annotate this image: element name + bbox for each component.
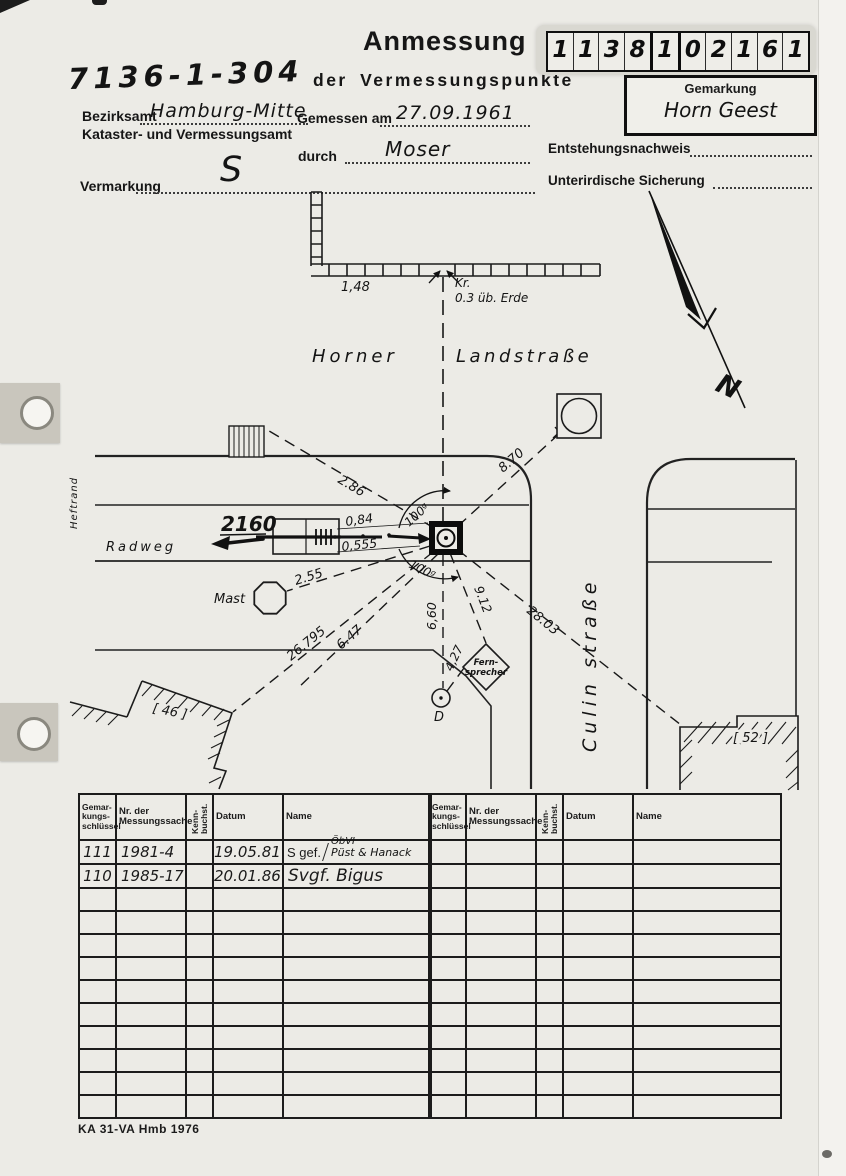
kr-label: Kr.	[455, 276, 471, 290]
wall-distance-label: 1,48	[341, 280, 370, 295]
col-header-gemarkung: Gemar- kungs- schlüssel	[429, 794, 466, 840]
cell-schluessel: 110	[79, 864, 116, 888]
measurement-log-table-left: Gemar- kungs- schlüssel Nr. der Messungs…	[78, 793, 432, 1119]
name-divider	[322, 843, 330, 861]
table-row: 110 1985-17 20.01.86 Svgf. Bigus	[79, 864, 431, 888]
heftrand-label: Heftrand	[69, 477, 80, 529]
scanned-survey-form: 7136-1-304 Anmessung der Vermessungspunk…	[0, 0, 846, 1176]
table-row	[429, 1072, 781, 1095]
radweg-label: Radweg	[106, 540, 176, 555]
table-row	[79, 911, 431, 934]
table-row	[429, 840, 781, 864]
measure-427: 4,27	[442, 643, 466, 673]
measure-660: 6,60	[424, 602, 439, 630]
survey-point-symbol	[432, 524, 460, 552]
table-row	[429, 1095, 781, 1118]
street-name-left: Horner	[312, 346, 398, 367]
cell-sache: 1985-17	[116, 864, 186, 888]
measure-912: 9.12	[471, 584, 495, 615]
col-header-kenn: Kenn- buchst.	[186, 794, 213, 840]
table-row	[429, 864, 781, 888]
north-label: N	[711, 368, 745, 406]
measure-26795: 26.795	[284, 624, 329, 664]
road-lines	[95, 456, 796, 789]
cell-schluessel: 111	[79, 840, 116, 864]
table-row: 111 1981-4 19.05.81 S gef. ÖbVI Püst & H…	[79, 840, 431, 864]
left-arrowhead	[211, 536, 230, 550]
table-row	[429, 888, 781, 911]
street-name-right: Landstraße	[456, 346, 592, 367]
target-point-label: 2160	[221, 512, 277, 536]
name-bottom: Püst & Hanack	[331, 847, 411, 858]
col-header-datum: Datum	[213, 794, 283, 840]
table-row	[79, 1072, 431, 1095]
form-code: KA 31-VA Hmb 1976	[78, 1122, 199, 1136]
table-row	[79, 1003, 431, 1026]
point-d-label: D	[434, 710, 444, 725]
name-prefix: S gef.	[287, 845, 321, 860]
kr-note-label: 0.3 üb. Erde	[455, 291, 528, 305]
cell-name: S gef. ÖbVI Püst & Hanack	[283, 840, 431, 864]
table-row	[429, 980, 781, 1003]
table-row	[79, 1026, 431, 1049]
cell-datum: 20.01.86	[213, 864, 283, 888]
table-row	[79, 957, 431, 980]
measure-0555: 0,555	[341, 535, 378, 554]
building-52-label: [ 52 ]	[733, 731, 768, 746]
street-name-vertical: Culin straße	[579, 578, 601, 752]
table-row	[79, 934, 431, 957]
measure-647: 6.47	[334, 622, 366, 653]
measure-255: 2.55	[293, 566, 325, 589]
cell-kenn	[186, 864, 213, 888]
table-row	[79, 1095, 431, 1118]
cell-datum: 19.05.81	[213, 840, 283, 864]
fernsprecher-label-2: sprecher	[465, 668, 508, 678]
table-row	[429, 1049, 781, 1072]
table-row	[79, 888, 431, 911]
col-header-name: Name	[283, 794, 431, 840]
measure-084: 0,84	[344, 510, 374, 529]
cell-name: Svgf. Bigus	[283, 864, 431, 888]
table-row	[429, 1026, 781, 1049]
fernsprecher-label-1: Fern-	[474, 658, 499, 668]
col-header-datum: Datum	[563, 794, 633, 840]
shaft-symbol	[557, 394, 601, 438]
table-row	[79, 980, 431, 1003]
table-row	[429, 934, 781, 957]
col-header-name: Name	[633, 794, 781, 840]
north-arrow: N	[649, 191, 745, 408]
cell-sache: 1981-4	[116, 840, 186, 864]
measure-286: 2.86	[335, 473, 368, 501]
table-row	[79, 1049, 431, 1072]
mast-label: Mast	[214, 592, 246, 607]
col-header-nr: Nr. der Messungssache	[116, 794, 186, 840]
mast-symbol	[254, 582, 285, 613]
building-46-label: [ 46 ]	[151, 701, 188, 722]
col-header-nr: Nr. der Messungssache	[466, 794, 536, 840]
point-d-symbol	[432, 689, 450, 707]
cell-kenn	[186, 840, 213, 864]
building-52	[680, 716, 798, 790]
table-row	[429, 957, 781, 980]
measurement-log-table-right: Gemar- kungs- schlüssel Nr. der Messungs…	[428, 793, 782, 1119]
wall-symbol	[311, 192, 600, 276]
col-header-gemarkung: Gemar- kungs- schlüssel	[79, 794, 116, 840]
sketch-labels: 1,48 Kr. 0.3 üb. Erde Horner Landstraße …	[69, 276, 768, 752]
measure-2803: 28.03	[523, 603, 561, 638]
table-row	[429, 1003, 781, 1026]
building-46	[70, 681, 232, 789]
col-header-kenn: Kenn- buchst.	[536, 794, 563, 840]
table-row	[429, 911, 781, 934]
